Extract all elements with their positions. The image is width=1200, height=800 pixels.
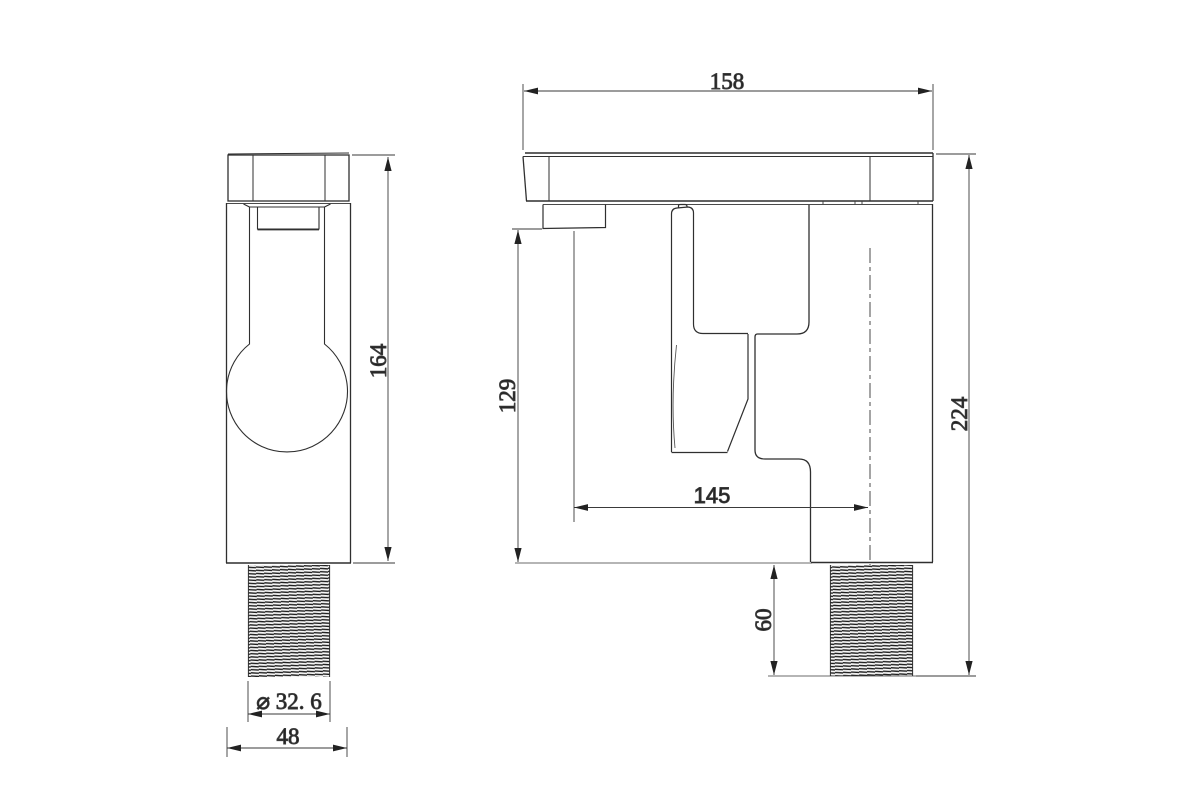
dim-outlet-height: 129 (495, 229, 812, 563)
dim-label-spout-length: 158 (710, 69, 745, 94)
dim-spout-length: 158 (523, 69, 933, 150)
side-outlet-box (543, 205, 606, 229)
side-handle (672, 205, 749, 453)
dim-overall-height: 224 (916, 154, 976, 676)
dim-label-front-height: 164 (366, 343, 391, 378)
dim-label-outlet-height: 129 (495, 379, 520, 414)
side-body-outline (755, 204, 933, 563)
dim-label-overall-height: 224 (947, 396, 972, 431)
front-handle-recess (226, 204, 347, 452)
dim-body-width: 48 (227, 724, 347, 757)
front-view (226, 153, 351, 677)
technical-drawing-canvas: 158 164 224 129 (0, 0, 1200, 800)
dim-spout-reach: 145 (574, 231, 868, 522)
side-thread-shank (830, 565, 913, 676)
dim-label-thread-length: 60 (751, 609, 776, 632)
dim-label-spout-reach: 145 (694, 483, 731, 508)
front-spout-cap (228, 153, 349, 201)
dim-label-thread-diameter: ⌀ 32. 6 (256, 689, 322, 714)
side-spout (523, 153, 933, 201)
dim-label-body-width: 48 (277, 724, 300, 749)
dim-thread-diameter: ⌀ 32. 6 (248, 681, 330, 722)
front-thread-shank (248, 565, 330, 677)
technical-drawing-page: 158 164 224 129 (0, 0, 1200, 800)
front-body-outline (226, 203, 351, 563)
side-view (523, 153, 933, 676)
dim-front-height: 164 (352, 155, 395, 563)
side-slab-seam (543, 202, 932, 206)
